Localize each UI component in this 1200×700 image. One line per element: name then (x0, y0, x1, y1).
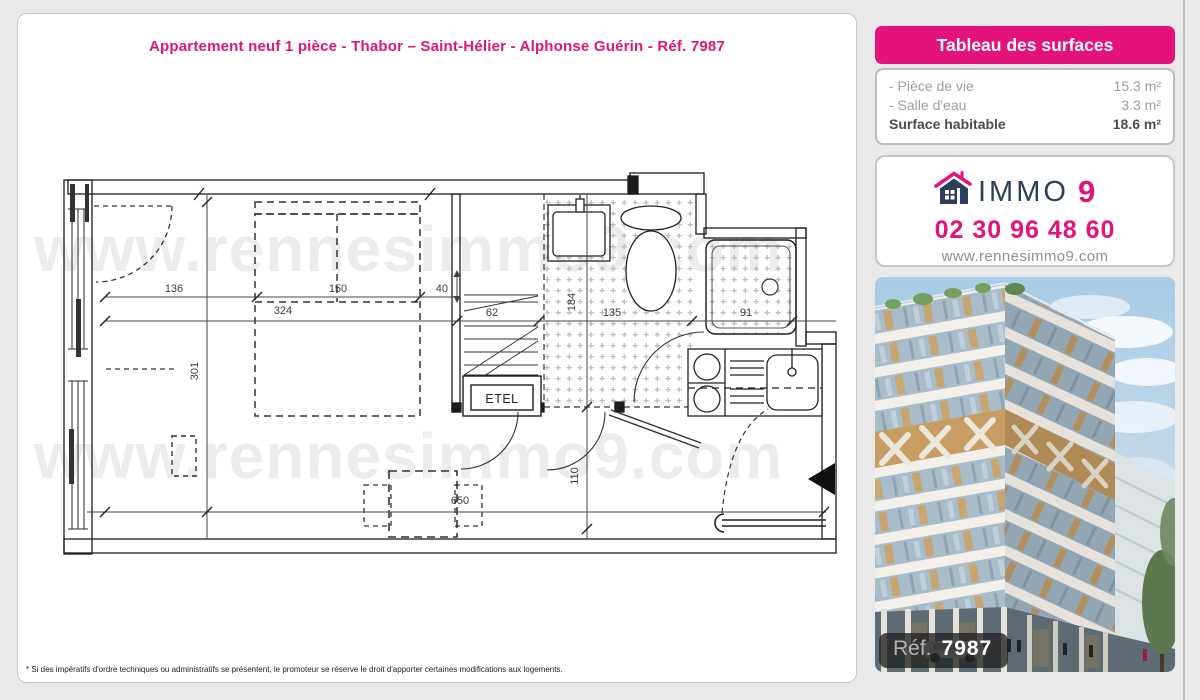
door-arcs (461, 410, 701, 470)
main-card: Appartement neuf 1 pièce - Thabor – Sain… (17, 13, 857, 683)
entry-door (715, 409, 835, 532)
scrollbar-divider (1183, 0, 1185, 700)
etel-box: ETEL (463, 376, 541, 416)
surface-row: - Salle d'eau 3.3 m² (889, 96, 1161, 115)
svg-text:324: 324 (274, 305, 292, 317)
surface-total-label: Surface habitable (889, 115, 1006, 134)
closet-shelves (464, 295, 538, 389)
svg-text:110: 110 (569, 467, 581, 485)
surface-label: - Salle d'eau (889, 96, 966, 115)
svg-text:IMMO: IMMO (978, 176, 1069, 208)
page-title: Appartement neuf 1 pièce - Thabor – Sain… (18, 38, 856, 55)
svg-text:91: 91 (740, 307, 752, 319)
svg-text:40: 40 (436, 283, 448, 295)
surface-total-row: Surface habitable 18.6 m² (889, 115, 1161, 134)
washbasin (548, 195, 610, 261)
surface-value: 15.3 m² (1114, 77, 1161, 96)
svg-text:ETEL: ETEL (485, 392, 518, 406)
house-icon (936, 173, 970, 205)
surfaces-table: - Pièce de vie 15.3 m² - Salle d'eau 3.3… (875, 68, 1175, 145)
agency-card: IMMO 9 02 30 96 48 60 www.rennesimmo9.co… (875, 155, 1175, 267)
immo9-logo: IMMO 9 (930, 169, 1120, 209)
surface-total-value: 18.6 m² (1113, 115, 1161, 134)
svg-text:150: 150 (329, 283, 347, 295)
windows (68, 184, 89, 529)
building-photo: Réf.7987 (875, 277, 1175, 672)
svg-text:62: 62 (486, 307, 498, 319)
surface-value: 3.3 m² (1121, 96, 1161, 115)
shower (706, 240, 796, 334)
svg-text:301: 301 (189, 362, 201, 380)
footnote: * Si des impératifs d'ordre techniques o… (26, 665, 563, 674)
floorplan: ETEL (58, 169, 850, 571)
phone-number: 02 30 96 48 60 (877, 216, 1173, 245)
ref-label: Réf. (893, 637, 932, 660)
svg-text:136: 136 (165, 283, 183, 295)
svg-text:9: 9 (1078, 174, 1095, 209)
door-arc-topleft (94, 206, 174, 369)
ref-badge: Réf.7987 (879, 633, 1008, 668)
ref-value: 7987 (942, 637, 993, 660)
svg-text:650: 650 (451, 495, 469, 507)
surfaces-panel-header: Tableau des surfaces (875, 26, 1175, 64)
svg-text:135: 135 (603, 307, 621, 319)
kitchen-counter (688, 349, 822, 416)
nightstand (172, 436, 196, 476)
website: www.rennesimmo9.com (877, 248, 1173, 265)
surface-label: - Pièce de vie (889, 77, 974, 96)
svg-text:184: 184 (566, 293, 578, 311)
surface-row: - Pièce de vie 15.3 m² (889, 77, 1161, 96)
